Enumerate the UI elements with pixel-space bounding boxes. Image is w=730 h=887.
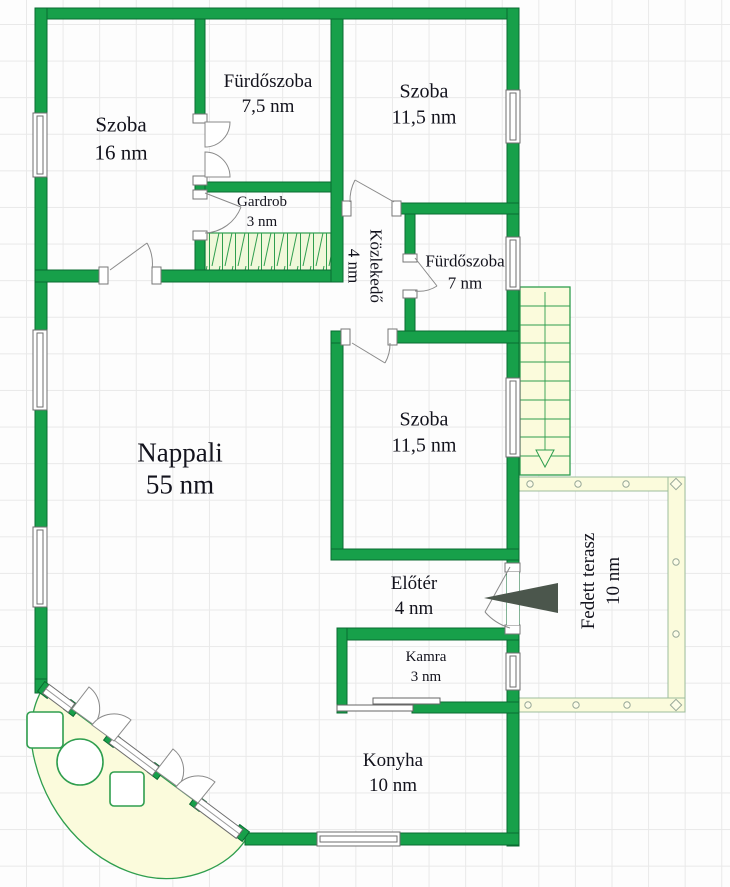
room-label-fedett-terasz: Fedett terasz 10 nm: [576, 533, 626, 630]
room-label-furdoszoba-75: Fürdőszoba 7,5 nm: [224, 69, 313, 119]
room-label-furdoszoba-7: Fürdőszoba 7 nm: [425, 251, 504, 296]
door-szoba-top: [350, 180, 394, 202]
window-right-szoba-mid: [506, 378, 520, 457]
door-gardrob: [205, 193, 241, 233]
room-label-kozlekedo: Közlekedő 4 nm: [342, 229, 387, 303]
room-label-nappali: Nappali 55 nm: [137, 437, 222, 502]
round-table: [57, 739, 103, 785]
room-label-gardrob: Gardrob 3 nm: [237, 193, 287, 233]
window-kitchen-bottom: [317, 832, 400, 846]
window-left-3: [33, 527, 47, 607]
floor-plan-canvas: Szoba 16 nm Fürdőszoba 7,5 nm Szoba 11,5…: [0, 0, 730, 887]
room-label-szoba-16: Szoba 16 nm: [94, 111, 147, 166]
wardrobe-closet: [205, 233, 331, 271]
staircase: [520, 287, 570, 475]
window-right-kamra: [506, 653, 520, 690]
room-label-eloter: Előtér 4 nm: [391, 571, 437, 621]
door-szoba-mid: [352, 343, 390, 363]
window-right-szoba-top: [506, 90, 520, 143]
entrance-arrow-icon: [484, 583, 558, 613]
door-furdoszoba-75: [205, 122, 230, 177]
room-label-kamra: Kamra 3 nm: [406, 648, 447, 688]
window-right-furdoszoba: [506, 237, 520, 290]
room-label-szoba-115-mid: Szoba 11,5 nm: [392, 407, 457, 460]
window-left-1: [33, 113, 47, 177]
square-table-2: [110, 772, 144, 806]
room-label-konyha: Konyha 10 nm: [363, 748, 423, 798]
square-table-1: [27, 712, 63, 748]
door-szoba-16: [110, 243, 152, 270]
room-label-szoba-115-top: Szoba 11,5 nm: [392, 79, 457, 132]
window-left-2: [33, 330, 47, 410]
